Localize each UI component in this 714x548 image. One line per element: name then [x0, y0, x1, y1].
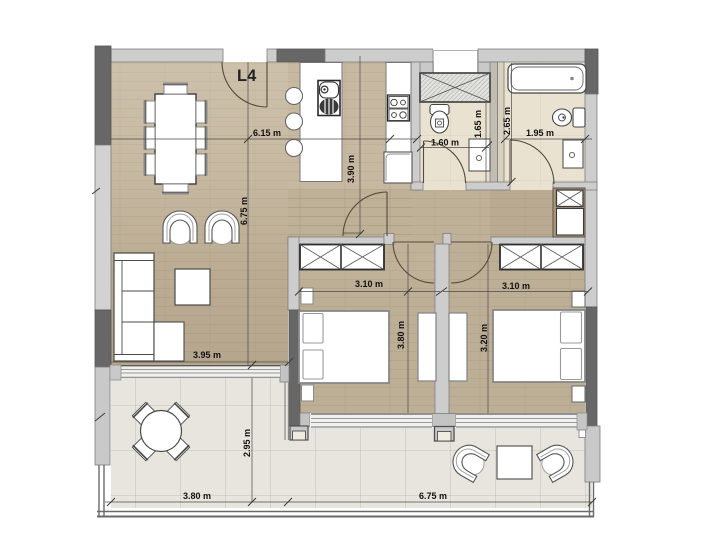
svg-text:6.75 m: 6.75 m	[239, 197, 249, 225]
svg-text:3.80 m: 3.80 m	[396, 321, 406, 349]
svg-text:2.65 m: 2.65 m	[502, 107, 512, 135]
svg-text:1.65 m: 1.65 m	[473, 110, 483, 138]
svg-text:3.10 m: 3.10 m	[502, 281, 530, 291]
svg-text:3.10 m: 3.10 m	[355, 279, 383, 289]
svg-text:3.80 m: 3.80 m	[183, 491, 211, 501]
svg-text:2.95 m: 2.95 m	[242, 429, 252, 457]
svg-text:1.60 m: 1.60 m	[431, 138, 459, 148]
svg-text:L4: L4	[237, 67, 257, 85]
svg-text:3.95 m: 3.95 m	[193, 350, 221, 360]
svg-text:3.90 m: 3.90 m	[346, 155, 356, 183]
svg-text:6.15 m: 6.15 m	[253, 128, 281, 138]
svg-text:6.75 m: 6.75 m	[419, 491, 447, 501]
svg-text:1.95 m: 1.95 m	[526, 128, 554, 138]
svg-text:3.20 m: 3.20 m	[479, 324, 489, 352]
